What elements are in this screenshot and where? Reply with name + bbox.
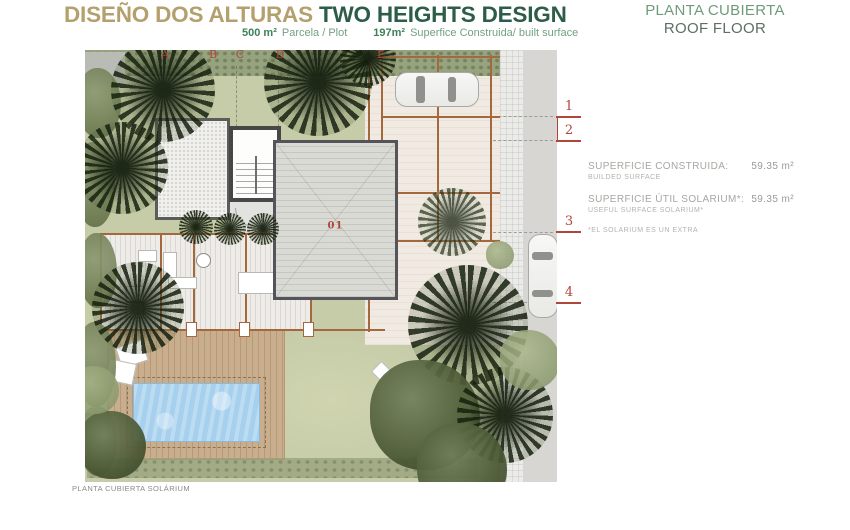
grid-connector-line xyxy=(557,117,558,141)
subtitle: 500 m²Parcela / Plot 197m²Superfice Cons… xyxy=(242,27,578,39)
sheet-title-spanish: PLANTA CUBIERTA xyxy=(632,2,798,20)
grid-dash xyxy=(493,232,553,233)
info-value: 59.35 m² xyxy=(751,161,794,172)
grid-dash xyxy=(493,116,553,117)
info-value: 59.35 m² xyxy=(751,194,794,205)
info-label: SUPERFICIE ÚTIL SOLARIUM*: xyxy=(588,194,744,205)
surface-info-panel: SUPERFICIE CONSTRUIDA:59.35 m² BUILDED S… xyxy=(588,161,794,234)
grid-number: 3 xyxy=(556,214,582,229)
small-palm xyxy=(214,213,246,245)
grid-number-underline xyxy=(556,116,581,118)
info-footnote: *EL SOLARIUM ES UN EXTRA xyxy=(588,227,794,234)
info-sublabel: USEFUL SURFACE SOLARIUM* xyxy=(588,207,794,214)
car-windshield xyxy=(416,76,425,103)
carport-post-line xyxy=(490,55,492,240)
sheet-title-english: ROOF FLOOR xyxy=(632,20,798,38)
parked-car-top-view xyxy=(528,234,557,318)
title-spanish: DISEÑO DOS ALTURAS xyxy=(64,2,313,27)
car-rear-window xyxy=(448,77,456,102)
info-row-built: SUPERFICIE CONSTRUIDA:59.35 m² BUILDED S… xyxy=(588,161,794,181)
grid-letter: D xyxy=(272,48,288,61)
built-size: 197m²Superfice Construida/ built surface xyxy=(373,27,578,39)
pergola-column xyxy=(186,322,197,337)
grid-number: 1 xyxy=(556,99,582,114)
stair-divider-wall xyxy=(255,156,257,194)
pergola-column xyxy=(239,322,250,337)
ceiling-fan-symbol xyxy=(196,253,211,268)
grid-letter: E xyxy=(373,48,389,61)
plan-caption: PLANTA CUBIERTA SOLÁRIUM xyxy=(72,484,190,493)
grid-number-underline xyxy=(556,231,581,233)
grid-number-underline xyxy=(556,302,581,304)
grid-dash xyxy=(493,140,553,141)
grid-number-underline xyxy=(556,140,581,142)
room-number-label: 01 xyxy=(328,221,344,232)
palm-tree xyxy=(418,188,486,256)
dining-table xyxy=(238,272,276,294)
info-sublabel: BUILDED SURFACE xyxy=(588,174,794,181)
info-label: SUPERFICIE CONSTRUIDA: xyxy=(588,161,728,172)
garden-shrub xyxy=(486,241,514,269)
palm-tree xyxy=(92,262,184,354)
plot-size: 500 m²Parcela / Plot xyxy=(242,27,347,39)
grid-number: 2 xyxy=(556,123,582,138)
sheet-title: PLANTA CUBIERTA ROOF FLOOR xyxy=(632,2,798,38)
page: DISEÑO DOS ALTURAS TWO HEIGHTS DESIGN 50… xyxy=(0,0,850,530)
solarium-roof: 01 xyxy=(273,140,398,300)
grid-number: 4 xyxy=(556,285,582,300)
outdoor-furniture xyxy=(138,250,157,262)
grid-letter: B xyxy=(205,48,221,61)
page-title: DISEÑO DOS ALTURAS TWO HEIGHTS DESIGN xyxy=(64,2,567,28)
small-palm xyxy=(247,213,279,245)
info-row-solarium: SUPERFICIE ÚTIL SOLARIUM*:59.35 m² USEFU… xyxy=(588,194,794,214)
carport-beam xyxy=(381,116,500,118)
car-windshield xyxy=(532,252,553,260)
title-english: TWO HEIGHTS DESIGN xyxy=(313,2,567,27)
small-palm xyxy=(179,210,213,244)
pergola-column xyxy=(303,322,314,337)
grid-letter: C xyxy=(232,48,248,61)
car-rear-window xyxy=(532,290,553,297)
grid-letter: A xyxy=(157,48,173,61)
swimming-pool xyxy=(133,383,260,442)
site-plan-drawing: 01 xyxy=(85,50,557,482)
car-top-view xyxy=(395,72,479,107)
grid-dash-vertical xyxy=(236,66,237,132)
garden-shrub xyxy=(500,330,557,390)
